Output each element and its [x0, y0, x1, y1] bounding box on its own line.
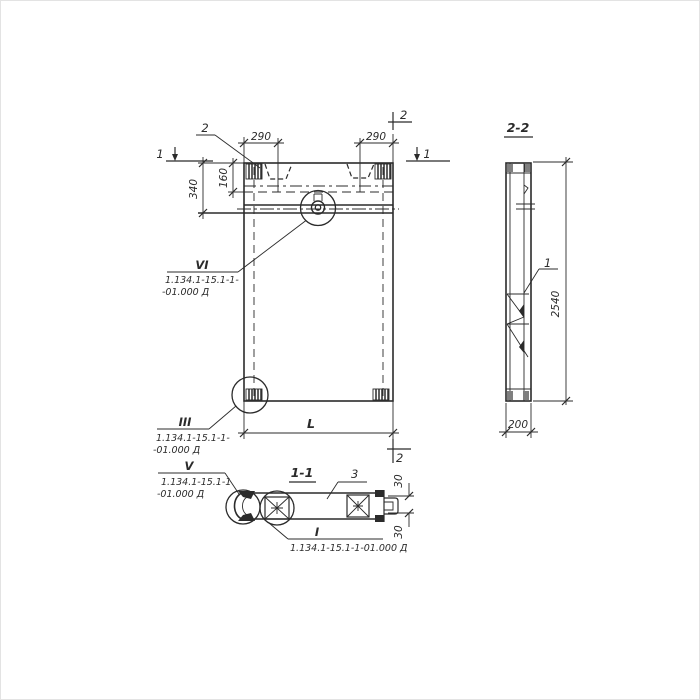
dim-200-value: 200 [508, 419, 528, 431]
callout-iii-numeral: III [179, 415, 193, 429]
dim-2540: 2540 [533, 157, 573, 405]
section-2-2-band-lines [516, 204, 535, 209]
dim-30-top-value: 30 [393, 474, 405, 488]
section-2-2-view: 2-2 1 2540 [499, 120, 573, 438]
dim-200: 200 [499, 403, 538, 438]
section-mark-2-top: 2 [388, 108, 412, 130]
bar-left-end [235, 491, 256, 521]
dim-length: L [238, 401, 399, 439]
corner-key-bottom-right [373, 389, 389, 400]
panel-outline [244, 163, 393, 401]
section-mark-1-right-label: 1 [423, 147, 430, 161]
callout-i-numeral: I [315, 525, 320, 539]
drawing-sheet: 290 290 340 160 L [0, 0, 700, 700]
detail-vi-leader [238, 221, 306, 273]
bar-right-end [375, 490, 398, 522]
svg-text:2-2: 2-2 [507, 120, 530, 135]
recess-top-left [265, 164, 292, 179]
callout-vi-ref2: -01.000 Д [162, 287, 209, 298]
part-label-1-text: 1 [544, 256, 551, 270]
callout-vi-numeral: VI [195, 258, 209, 272]
callout-iii-ref2: -01.000 Д [153, 445, 200, 456]
section-2-2-top-hatch [508, 164, 529, 172]
dim-290-right-value: 290 [366, 131, 386, 143]
callout-v: V 1.134.1-15.1-1 -01.000 Д [157, 459, 239, 500]
section-2-2-bottom-hatch [508, 391, 528, 400]
lifting-loop [312, 194, 325, 214]
section-mark-1-right: 1 [406, 147, 450, 161]
front-view: 290 290 340 160 L [153, 108, 450, 465]
detail-circle-iii [232, 377, 268, 413]
dim-length-value: L [307, 416, 315, 431]
callout-vi: VI 1.134.1-15.1-1- -01.000 Д [162, 258, 239, 298]
section-mark-2-bottom-label: 2 [396, 451, 403, 465]
anchor-symbol-right [347, 495, 369, 517]
callout-i-ref1: 1.134.1-15.1-1-01.000 Д [290, 543, 407, 554]
technical-drawing: 290 290 340 160 L [1, 1, 700, 700]
section-1-1-title: 1-1 [289, 465, 316, 482]
callout-v-numeral: V [185, 459, 195, 473]
part-label-1: 1 [524, 256, 558, 293]
section-2-2-title: 2-2 [504, 120, 533, 137]
section-1-1-view: 1-1 3 [157, 459, 414, 554]
part-label-3-text: 3 [351, 467, 358, 481]
callout-i: I 1.134.1-15.1-1-01.000 Д [269, 523, 407, 554]
dim-290-left-value: 290 [251, 131, 271, 143]
section-mark-2-bottom: 2 [387, 439, 411, 465]
callout-v-ref1: 1.134.1-15.1-1 [161, 477, 231, 488]
section-mark-1-left-label: 1 [156, 147, 163, 161]
dim-290-left: 290 [238, 131, 284, 192]
recess-top-right [347, 164, 374, 178]
section-mark-2-top-label: 2 [400, 108, 407, 122]
dim-160: 160 [218, 158, 244, 198]
callout-vi-ref1: 1.134.1-15.1-1- [165, 275, 239, 286]
key-leader-label: 2 [201, 121, 208, 135]
part-label-3: 3 [327, 467, 367, 499]
callout-v-ref2: -01.000 Д [157, 489, 204, 500]
dim-30-top: 30 [388, 474, 414, 500]
svg-text:1-1: 1-1 [291, 465, 314, 480]
dim-2540-value: 2540 [550, 290, 562, 317]
dim-160-value: 160 [218, 168, 230, 188]
dim-340-value: 340 [188, 179, 200, 199]
anchor-symbol-left [265, 497, 289, 519]
callout-iii-ref1: 1.134.1-15.1-1- [156, 433, 230, 444]
detail-iii-leader [209, 406, 236, 429]
dim-30-bottom-value: 30 [393, 525, 405, 539]
section-2-2-notch [524, 185, 528, 194]
section-mark-1-left: 1 [156, 147, 213, 161]
